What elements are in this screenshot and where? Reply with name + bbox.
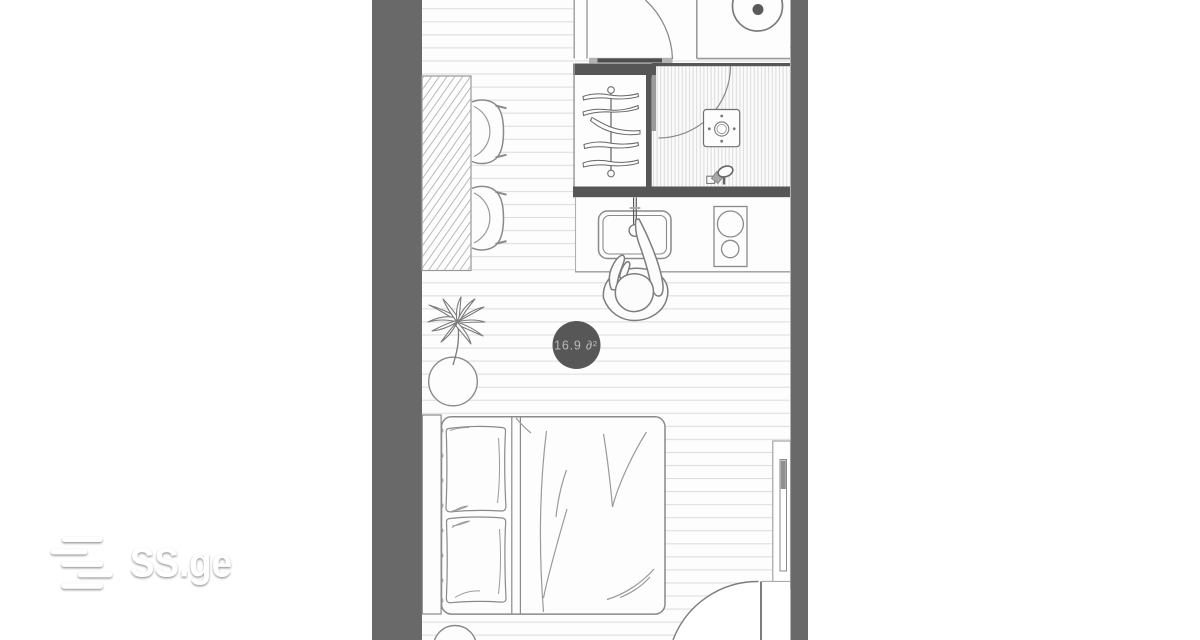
svg-text:16.9 ∂²: 16.9 ∂²	[554, 339, 598, 353]
svg-text:SS.ge: SS.ge	[130, 540, 232, 586]
